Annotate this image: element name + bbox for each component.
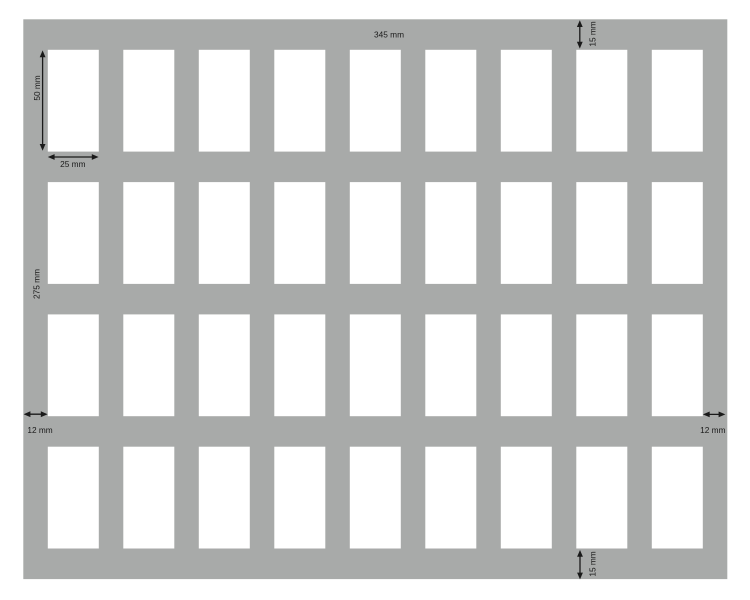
svg-text:25 mm: 25 mm xyxy=(60,159,85,169)
svg-text:12 mm: 12 mm xyxy=(700,425,725,435)
svg-text:50 mm: 50 mm xyxy=(32,75,42,100)
svg-text:275 mm: 275 mm xyxy=(32,269,42,299)
svg-text:345 mm: 345 mm xyxy=(374,30,404,40)
svg-text:15 mm: 15 mm xyxy=(587,21,597,46)
svg-text:12 mm: 12 mm xyxy=(27,425,52,435)
svg-text:15 mm: 15 mm xyxy=(587,551,597,576)
